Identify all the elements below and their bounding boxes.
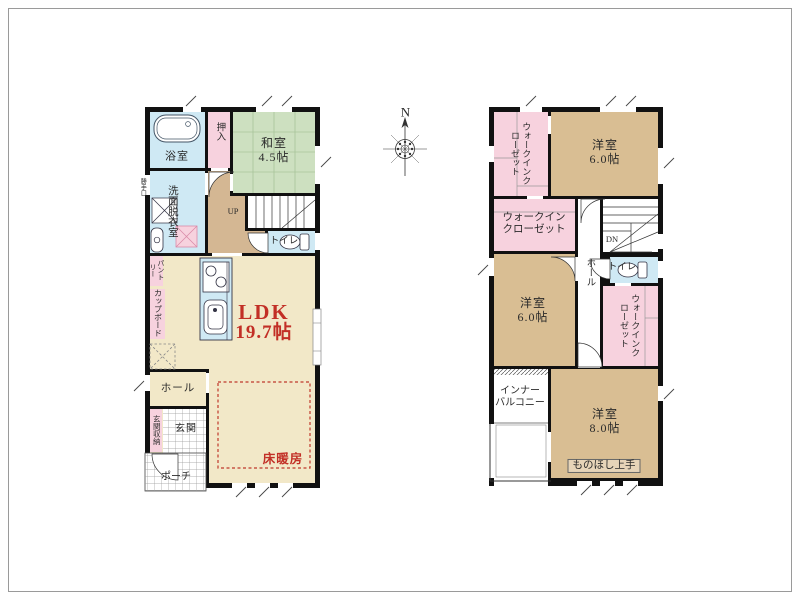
inner-balcony-label-line2: バルコニー (495, 397, 545, 409)
porch-label: ポーチ (161, 471, 191, 483)
wic-mid-label-line2: クローゼット (503, 224, 566, 236)
toilet2f-label: トイレ (608, 263, 637, 274)
floor-heating-label: 床暖房 (263, 452, 304, 466)
stairs-up-label: UP (228, 207, 239, 217)
room3-size: 8.0帖 (589, 422, 620, 436)
laundry-space (176, 226, 197, 247)
oshiire-label: 押入 (214, 115, 225, 147)
back-door-label: 勝手口 (139, 176, 146, 198)
hall2f-label: ホール (584, 254, 595, 290)
cupboard-label: カップボード (153, 288, 162, 338)
inner-balcony-label-line1: インナー (500, 385, 540, 397)
stairs-up-area (248, 196, 315, 228)
compass-north-label: N (401, 106, 411, 121)
floor2-plan (478, 96, 674, 495)
entrance-storage-label: 玄関収納 (152, 410, 160, 450)
floor1-plan (134, 96, 331, 497)
wic-e-label: ウォークインクローゼット (618, 293, 641, 357)
entrance-label: 玄関 (175, 423, 197, 435)
ldk-label: LDK (238, 300, 290, 324)
bathroom-label: 浴室 (165, 151, 189, 164)
pantry-label: パントリー (148, 257, 164, 284)
room2-label: 洋室 (520, 297, 546, 311)
room3-label: 洋室 (592, 408, 618, 422)
japanese-room-label: 和室 (261, 137, 287, 151)
kitchen-counter (200, 258, 232, 340)
room2-size: 6.0帖 (517, 311, 548, 325)
floorplan-page: 浴室 押入 和室 4.5帖 洗面脱衣室 UP トイレ 勝手口 パントリー カップ… (0, 0, 800, 600)
toilet1f-label: トイレ (270, 237, 299, 248)
wic-mid-label-line1: ウォークイン (503, 212, 566, 224)
compass-rose (383, 117, 427, 176)
japanese-room-size: 4.5帖 (258, 151, 289, 165)
stairs-down-label: DN (606, 235, 618, 245)
wash-basin (151, 228, 163, 252)
room1-size: 6.0帖 (589, 153, 620, 167)
hall1f-label: ホール (161, 383, 196, 395)
ldk-size-label: 19.7帖 (235, 322, 292, 344)
wic-nw-label: ウォークインクローゼット (509, 121, 532, 185)
washroom-label: 洗面脱衣室 (166, 175, 178, 247)
laundry-pole-label: ものほし上手 (568, 459, 641, 473)
floorplan-drawing (0, 0, 800, 600)
bathtub (154, 115, 200, 142)
room1-label: 洋室 (592, 139, 618, 153)
